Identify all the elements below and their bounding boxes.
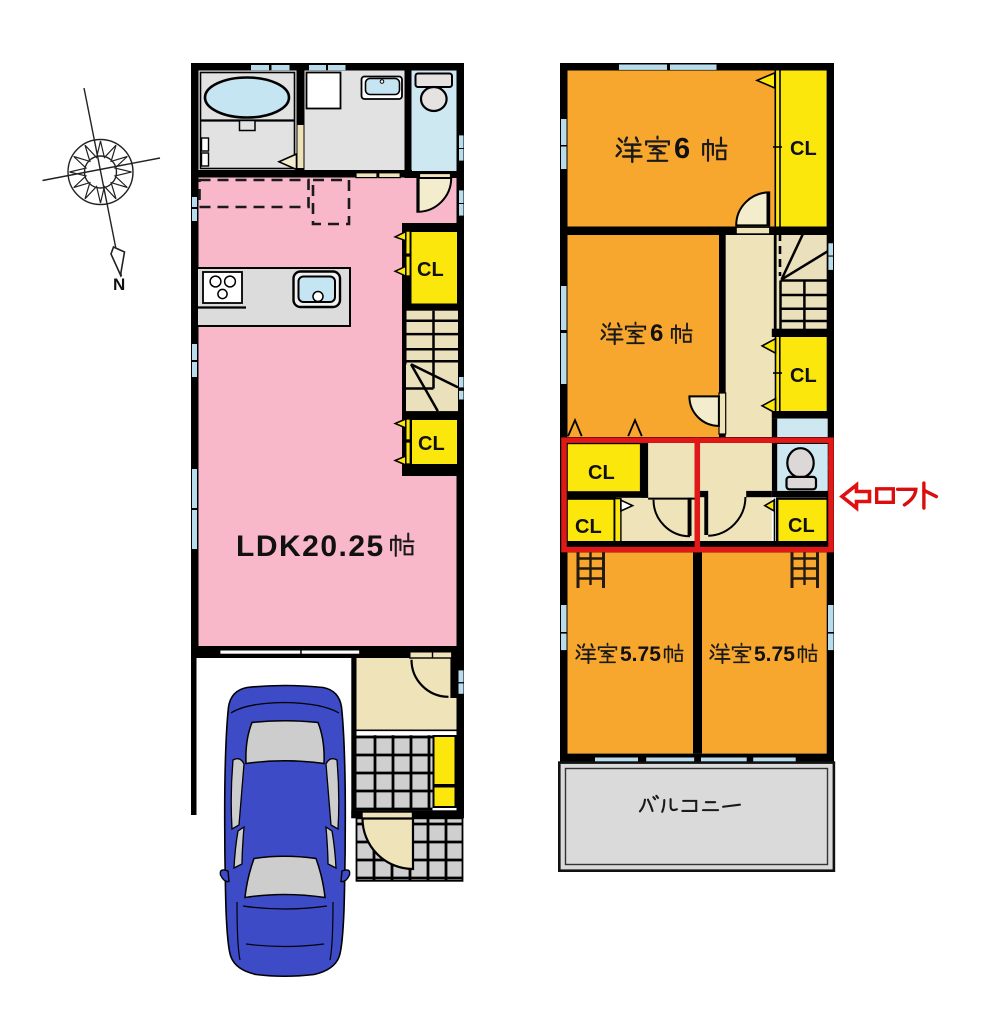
svg-text:CL: CL (788, 515, 815, 537)
svg-text:CL: CL (418, 433, 445, 455)
svg-text:6: 6 (650, 320, 663, 347)
svg-text:6: 6 (674, 133, 690, 165)
svg-text:CL: CL (588, 462, 615, 484)
svg-text:LDK20.25: LDK20.25 (236, 530, 385, 563)
svg-text:CL: CL (790, 138, 817, 160)
svg-text:5.75: 5.75 (754, 643, 795, 666)
svg-text:5.75: 5.75 (620, 643, 661, 666)
svg-text:N: N (113, 275, 125, 294)
svg-text:CL: CL (417, 259, 444, 281)
svg-text:CL: CL (575, 516, 602, 538)
svg-text:CL: CL (790, 365, 817, 387)
